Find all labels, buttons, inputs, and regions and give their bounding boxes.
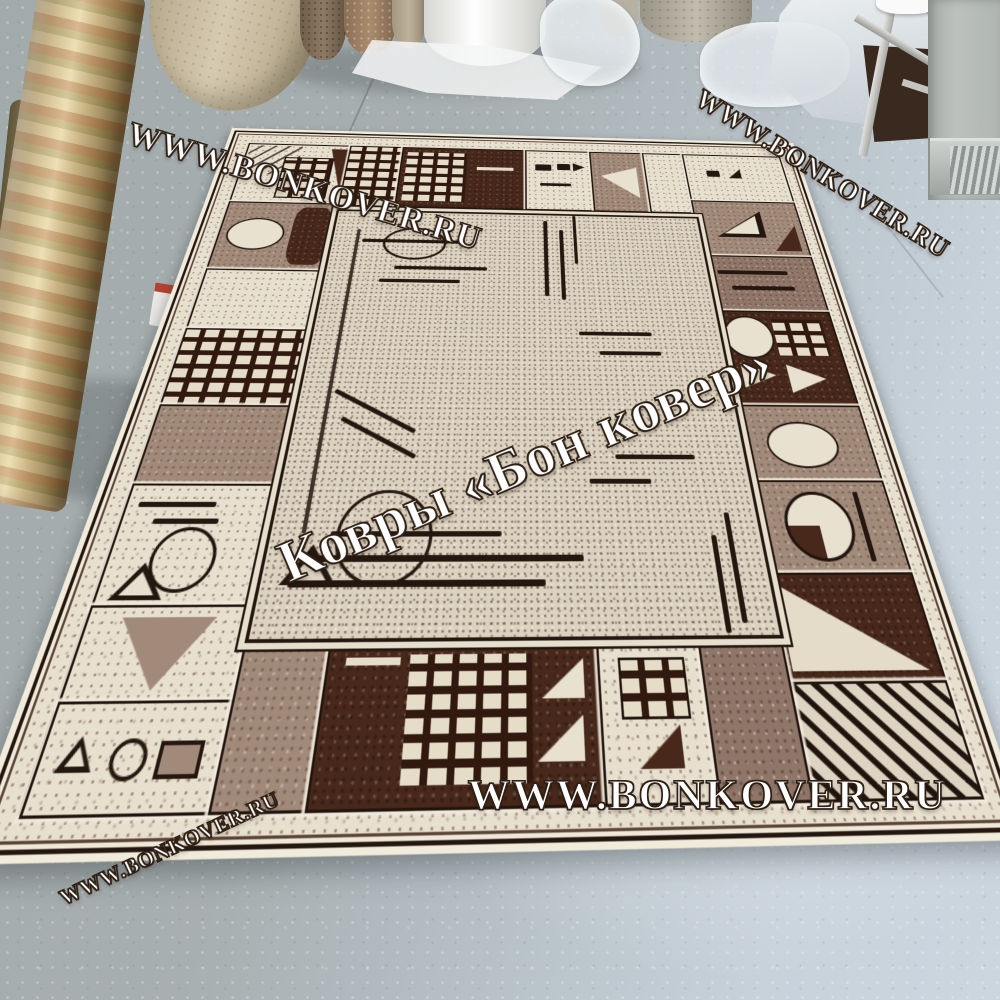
rug-border-cell (56, 604, 257, 707)
rug-rect-glyph (706, 171, 720, 177)
rug-grid-motif (618, 657, 692, 720)
rug-dash-vertical (572, 216, 578, 264)
brown-carpet-roll (300, 0, 346, 60)
rug-border-cell (185, 268, 327, 332)
rug-dash (615, 454, 695, 459)
rug-triangle-motif (775, 583, 930, 671)
rug-triangle-inner (720, 215, 759, 234)
rug-dark-wedge (769, 225, 802, 251)
rug-dash-vertical (559, 230, 566, 300)
rug-dash-vertical (852, 492, 877, 562)
rug-grid-motif (771, 319, 832, 356)
rug-grid-motif (401, 152, 467, 202)
rug-glyph-cell (525, 150, 597, 211)
rug-triangle-glyph (637, 724, 685, 769)
rug-diagonal-dash (340, 416, 416, 459)
rug-rect-glyph (557, 164, 570, 170)
rug-dash (599, 351, 661, 355)
rug-square-glyph (152, 740, 206, 779)
rug-triangle-glyph (573, 163, 585, 171)
rug-border-cell (131, 404, 298, 487)
rug-border-cell (731, 405, 884, 485)
rug-flag-motif (600, 167, 640, 198)
rug-cream-dash (477, 167, 514, 171)
rug-dash (540, 183, 571, 186)
rug-triangle-glyph (537, 715, 585, 762)
warehouse-rug-photo: WWW.BONKOVER.RU WWW.BONKOVER.RU Ковры «Б… (0, 0, 1000, 1000)
rug-border-cell (702, 255, 831, 315)
rug-cream-dash (345, 657, 401, 665)
rug-dash (138, 502, 217, 507)
rug-rect-glyph (535, 164, 551, 170)
rug-dash (394, 266, 487, 271)
rug-dash-vertical (711, 535, 732, 633)
rug-pie-circle (778, 492, 864, 562)
rug-border-cell (691, 200, 813, 259)
rug-ellipse-motif (221, 217, 288, 250)
rug-dash (579, 332, 652, 337)
rug-dash-vertical (543, 221, 549, 296)
rug-filled-triangle (100, 617, 218, 692)
rug-triangle-glyph (541, 658, 585, 698)
rug-ellipse-motif (762, 422, 845, 469)
rug-triangle-glyph (727, 169, 742, 178)
watermark-site-bottom-center: WWW.BONKOVER.RU (468, 772, 947, 820)
rug-grid-cell (159, 328, 315, 409)
rug-dash (379, 279, 460, 284)
rug-dash (717, 270, 788, 275)
rug-dark-band (394, 147, 528, 210)
plastic-bag (540, 0, 640, 86)
rug-circle-glyph (103, 738, 152, 782)
grey-carpet-roll (392, 0, 426, 48)
rug-dash (590, 479, 652, 484)
rug-diagonal-dash (334, 389, 416, 434)
rug-grid-motif (400, 653, 534, 785)
rug-dash (152, 519, 219, 524)
rug-triangle-glyph (786, 365, 831, 394)
metal-ridged-plate (950, 146, 1000, 194)
rug-dash (732, 286, 796, 291)
